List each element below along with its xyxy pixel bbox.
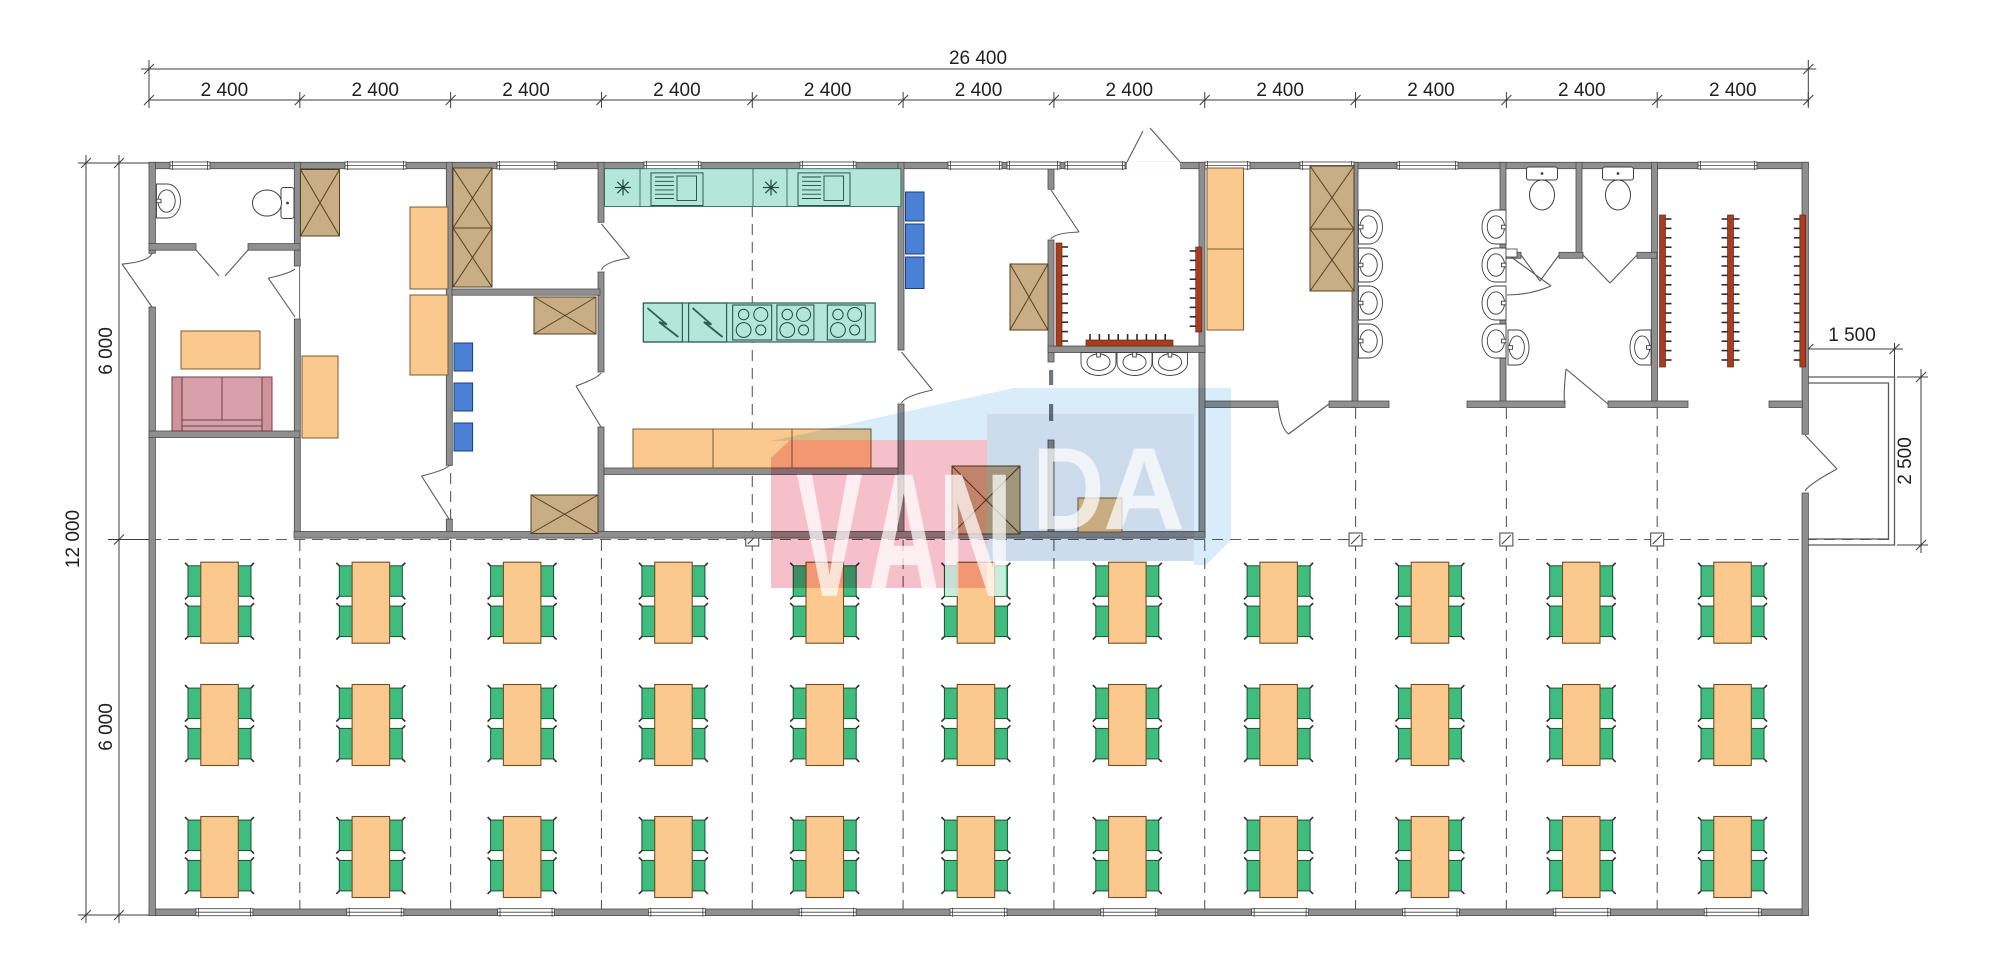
svg-text:2 400: 2 400: [804, 80, 852, 101]
svg-text:A: A: [867, 436, 942, 634]
svg-text:2 400: 2 400: [1558, 80, 1606, 101]
svg-text:2 500: 2 500: [1895, 437, 1916, 485]
svg-text:2 400: 2 400: [1709, 80, 1757, 101]
svg-text:2 400: 2 400: [1407, 80, 1455, 101]
svg-text:V: V: [796, 438, 862, 634]
svg-text:2 400: 2 400: [955, 80, 1003, 101]
svg-text:6 000: 6 000: [96, 703, 117, 751]
svg-text:6 000: 6 000: [96, 327, 117, 375]
svg-text:26 400: 26 400: [949, 48, 1007, 69]
svg-text:2 400: 2 400: [201, 80, 249, 101]
svg-text:2 400: 2 400: [502, 80, 550, 101]
svg-text:D: D: [1032, 425, 1104, 555]
svg-text:2 400: 2 400: [1106, 80, 1154, 101]
svg-text:A: A: [1103, 425, 1185, 555]
svg-text:12 000: 12 000: [63, 510, 84, 568]
svg-text:2 400: 2 400: [1256, 80, 1304, 101]
svg-text:1 500: 1 500: [1828, 325, 1876, 346]
svg-text:2 400: 2 400: [351, 80, 399, 101]
svg-text:N: N: [938, 436, 1013, 634]
svg-text:2 400: 2 400: [653, 80, 701, 101]
